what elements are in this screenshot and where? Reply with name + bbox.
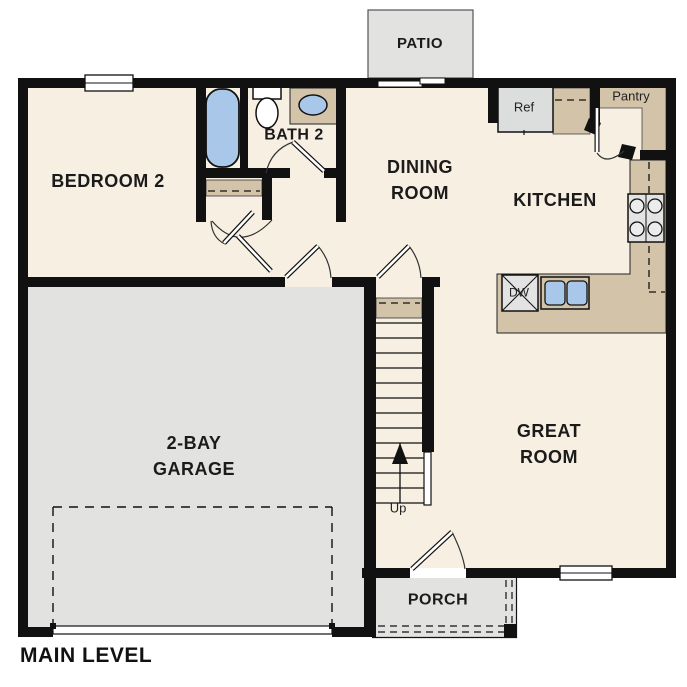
up-label: Up: [390, 500, 407, 519]
wall-right: [666, 78, 676, 578]
garage-line1: 2-BAY: [153, 430, 235, 456]
stove: [628, 194, 664, 242]
wall-stair-right: [422, 277, 434, 452]
wall-bedroom-east: [196, 78, 206, 222]
patio-slider-panel: [420, 78, 445, 84]
great-line1: GREAT: [517, 418, 581, 444]
dining-room-label: DINING ROOM: [387, 154, 453, 206]
bath-sink: [299, 95, 327, 115]
dining-line1: DINING: [387, 154, 453, 180]
stair-railing: [424, 452, 431, 505]
dining-line2: ROOM: [387, 180, 453, 206]
wall-garage-bottom-left: [18, 627, 53, 637]
kitchen-label: KITCHEN: [513, 187, 597, 213]
kitchen-cabinet: [553, 88, 590, 134]
refrigerator-label: Ref: [514, 99, 534, 118]
wall-ref-stub: [488, 78, 498, 123]
garage-line2: GARAGE: [153, 456, 235, 482]
closet-shelf: [206, 180, 262, 196]
wall-pantry-bottom: [640, 150, 666, 160]
patio-label: PATIO: [397, 33, 443, 55]
stair-shelf: [376, 298, 422, 318]
plan-title: MAIN LEVEL: [20, 644, 152, 668]
wall-tub-divider: [240, 78, 248, 174]
floor-plan: PATIO BEDROOM 2 BATH 2 DINING ROOM KITCH…: [0, 0, 687, 687]
floor-plan-drawing: [0, 0, 687, 687]
great-room-label: GREAT ROOM: [517, 418, 581, 470]
patio-slider-panel: [378, 81, 422, 87]
bedroom2-label: BEDROOM 2: [51, 168, 165, 194]
great-line2: ROOM: [517, 444, 581, 470]
wall-garage-top-b: [332, 277, 376, 287]
wall-left: [18, 78, 28, 637]
pantry-label: Pantry: [612, 88, 650, 107]
bathtub: [206, 89, 239, 167]
dishwasher-label: DW: [509, 284, 529, 301]
wall-garage-right: [364, 277, 376, 637]
wall-garage-top-a: [18, 277, 285, 287]
porch-label: PORCH: [408, 588, 468, 611]
kitchen-sink: [541, 277, 589, 309]
wall-bath-bottom-right: [324, 168, 346, 178]
wall-bath-bottom-left: [196, 168, 290, 178]
garage-label: 2-BAY GARAGE: [153, 430, 235, 482]
porch-post: [504, 624, 517, 637]
wall-closet-right: [262, 168, 272, 220]
wall-dining-left: [336, 78, 346, 222]
bath2-label: BATH 2: [264, 123, 324, 146]
